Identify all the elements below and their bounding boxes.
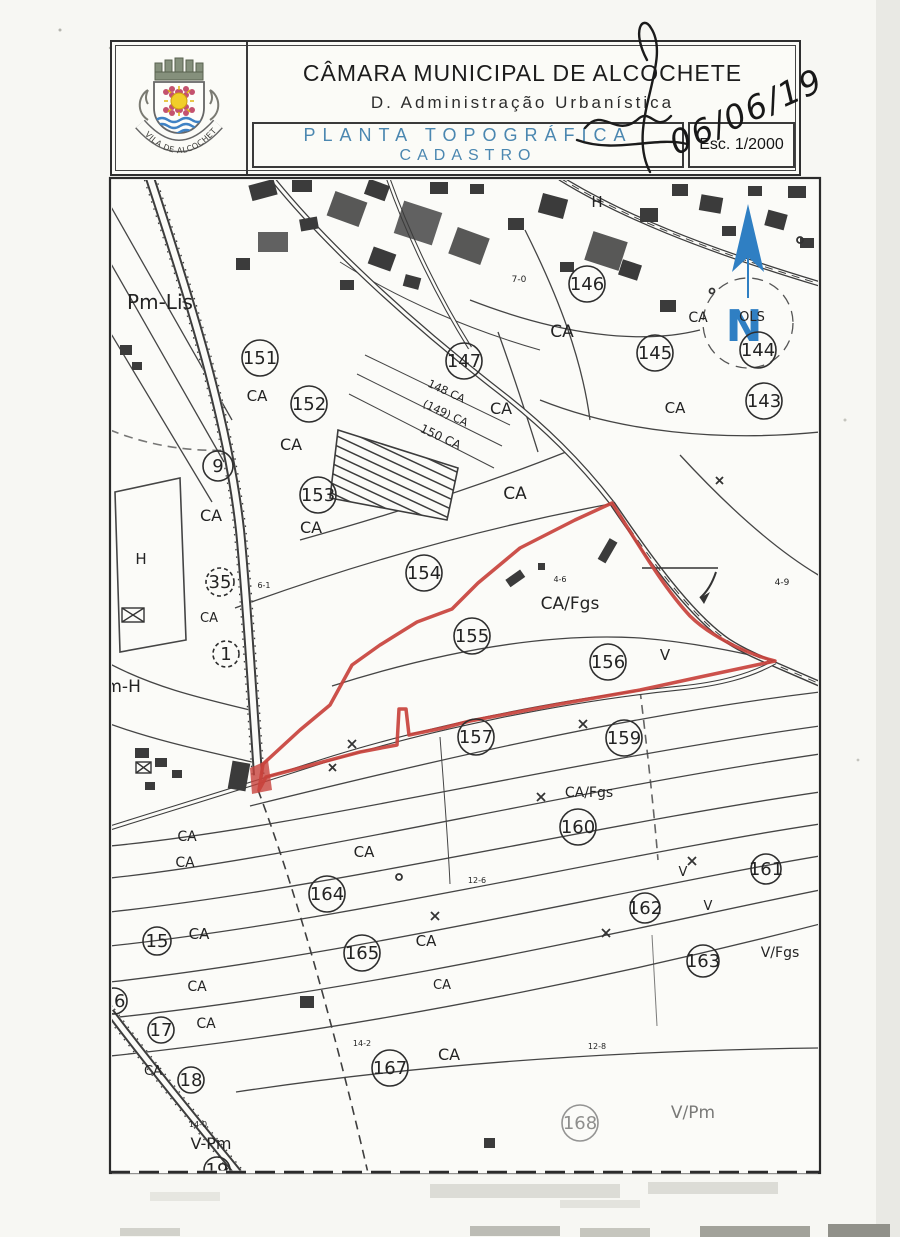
svg-text:153: 153 [301,485,335,506]
map-label: CA [200,611,218,626]
svg-text:16: 16 [103,991,126,1012]
scale-label: Esc. 1/2000 [699,136,784,154]
map-label: V/Fgs [761,945,800,961]
map-label: Pm-H [95,677,141,697]
map-label: CA [300,518,322,537]
svg-text:CA: CA [280,435,302,454]
svg-text:V: V [679,865,688,880]
svg-text:161: 161 [749,859,783,880]
title-area: CÂMARA MUNICIPAL DE ALCOCHETE D. Adminis… [250,48,795,120]
scale-box: Esc. 1/2000 [688,122,795,168]
svg-text:160: 160 [561,817,595,838]
svg-text:V-Pm: V-Pm [190,1134,231,1153]
map-label: 7-0 [512,275,527,285]
svg-text:155: 155 [455,626,489,647]
svg-text:163: 163 [686,951,720,972]
map-label: V/Pm [671,1103,715,1123]
svg-text:CA: CA [200,611,218,626]
svg-text:1: 1 [220,644,231,665]
map-label: V [660,646,671,664]
svg-text:V/Pm: V/Pm [671,1103,715,1123]
map-label: V [679,865,688,880]
svg-text:CA: CA [688,310,708,326]
svg-text:7-0: 7-0 [512,275,527,285]
svg-text:H: H [591,193,602,211]
svg-text:CA: CA [433,978,451,993]
svg-text:V: V [704,899,713,914]
map-label: 16 [101,988,127,1014]
mural-crown [155,58,203,80]
svg-text:12-8: 12-8 [588,1042,606,1051]
svg-text:CA: CA [144,1064,162,1079]
svg-text:18: 18 [180,1070,203,1091]
map-label: CA/Fgs [541,594,600,614]
map-label: 12-8 [588,1042,606,1051]
map-label: CA [144,1064,162,1079]
cadastral-map: N Pm-Lis151CA152CA9CA153CA147148 CA(149)… [0,0,900,1237]
map-label: 18 [178,1067,204,1093]
svg-text:14-0: 14-0 [189,1120,207,1129]
svg-text:152: 152 [292,394,326,415]
svg-text:17: 17 [150,1020,173,1041]
svg-text:CA: CA [177,829,197,845]
svg-text:156: 156 [591,652,625,673]
department-subtitle: D. Administração Urbanística [250,93,795,113]
svg-text:168: 168 [563,1113,597,1134]
doc-title-line2: CADASTRO [400,147,537,165]
svg-text:144: 144 [741,340,775,361]
svg-text:CA: CA [665,399,686,417]
svg-text:CA: CA [503,484,527,504]
map-label: CA [189,925,210,943]
map-label: OLS [739,310,765,325]
map-label: CA [354,843,375,861]
map-label: CA [247,387,268,405]
scanned-page: N Pm-Lis151CA152CA9CA153CA147148 CA(149)… [0,0,900,1237]
map-label: V [704,899,713,914]
map-label: 162 [628,893,662,923]
svg-text:146: 146 [570,274,604,295]
header-box: VILA DE ALCOCHETE CÂMARA MUNICIPAL DE AL… [110,40,801,176]
map-label: CA [280,435,302,454]
map-label: 12-6 [468,876,486,885]
map-label: CA [416,932,437,950]
svg-text:CA: CA [175,855,195,871]
doc-title-line1: PLANTA TOPOGRÁFICA [303,125,632,146]
doc-title-box: PLANTA TOPOGRÁFICA CADASTRO [252,122,684,168]
svg-text:CA: CA [300,518,322,537]
svg-text:V/Fgs: V/Fgs [761,945,800,961]
svg-text:H: H [135,550,146,568]
svg-text:OLS: OLS [739,310,765,325]
municipality-title: CÂMARA MUNICIPAL DE ALCOCHETE [250,60,795,87]
svg-text:165: 165 [345,943,379,964]
map-label: Pm-Lis [127,290,193,314]
svg-text:167: 167 [373,1058,407,1079]
svg-text:154: 154 [407,563,441,584]
svg-text:Pm-H: Pm-H [95,677,141,697]
map-label: CA [175,855,195,871]
svg-text:CA: CA [490,399,512,418]
svg-text:CA/Fgs: CA/Fgs [565,785,613,801]
map-label: 14-2 [353,1039,371,1048]
svg-text:15: 15 [146,931,169,952]
svg-text:CA/Fgs: CA/Fgs [541,594,600,614]
map-label: 4-6 [553,575,566,584]
map-label: H [591,193,602,211]
svg-text:143: 143 [747,391,781,412]
map-label: H [135,550,146,568]
svg-text:157: 157 [459,727,493,748]
map-label: 6-1 [257,581,270,590]
map-label: 17 [148,1017,174,1043]
map-label: CA/Fgs [565,785,613,801]
map-label: CA [550,322,574,342]
svg-text:14-2: 14-2 [353,1039,371,1048]
coat-of-arms: VILA DE ALCOCHETE [112,44,246,172]
map-label: CA [665,399,686,417]
scan-right-margin [876,0,900,1237]
map-label: CA [490,399,512,418]
map-label: 4-9 [775,578,790,588]
svg-text:151: 151 [243,348,277,369]
svg-text:164: 164 [310,884,344,905]
svg-text:159: 159 [607,728,641,749]
svg-text:9: 9 [212,456,223,477]
svg-text:V: V [660,646,671,664]
map-label: CA [433,978,451,993]
svg-text:35: 35 [209,572,232,593]
svg-text:4-9: 4-9 [775,578,790,588]
crest-cell: VILA DE ALCOCHETE [112,42,248,174]
svg-text:145: 145 [638,343,672,364]
map-label: 19 [204,1157,230,1183]
svg-text:CA: CA [438,1045,460,1064]
map-label: CA [688,310,708,326]
map-label: 15 [143,927,171,955]
svg-text:Pm-Lis: Pm-Lis [127,290,193,314]
map-label: CA [177,829,197,845]
svg-text:CA: CA [550,322,574,342]
svg-text:CA: CA [416,932,437,950]
svg-text:12-6: 12-6 [468,876,486,885]
map-label: 161 [749,854,783,884]
svg-text:6-1: 6-1 [257,581,270,590]
svg-text:162: 162 [628,898,662,919]
svg-text:CA: CA [354,843,375,861]
map-label: CA [196,1016,216,1032]
map-label: CA [438,1045,460,1064]
svg-text:CA: CA [189,925,210,943]
svg-text:CA: CA [200,506,222,525]
map-label: CA [503,484,527,504]
map-label: 14-0 [189,1120,207,1129]
svg-text:CA: CA [196,1016,216,1032]
map-label: CA [187,979,207,995]
map-label: CA [200,506,222,525]
map-label: 35 [206,568,234,596]
svg-text:4-6: 4-6 [553,575,566,584]
svg-text:CA: CA [247,387,268,405]
map-label: V-Pm [190,1134,231,1153]
svg-text:147: 147 [447,351,481,372]
svg-text:CA: CA [187,979,207,995]
